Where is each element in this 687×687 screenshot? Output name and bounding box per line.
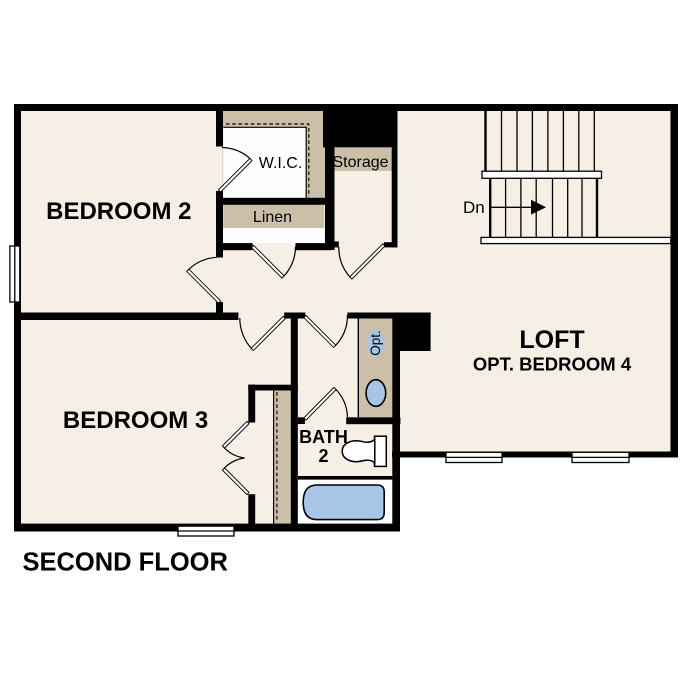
svg-text:OPT. BEDROOM 4: OPT. BEDROOM 4: [473, 354, 632, 375]
svg-text:Dn: Dn: [463, 198, 485, 217]
svg-text:SECOND FLOOR: SECOND FLOOR: [23, 549, 228, 577]
svg-text:BEDROOM 2: BEDROOM 2: [46, 198, 191, 225]
svg-text:BEDROOM 3: BEDROOM 3: [63, 407, 208, 434]
svg-text:Linen: Linen: [253, 209, 292, 226]
svg-text:W.I.C.: W.I.C.: [259, 155, 303, 172]
svg-text:2: 2: [318, 446, 328, 466]
svg-text:Opt.: Opt.: [368, 330, 383, 356]
svg-text:Storage: Storage: [332, 154, 388, 171]
svg-text:BATH: BATH: [299, 427, 348, 447]
svg-text:LOFT: LOFT: [519, 326, 584, 354]
